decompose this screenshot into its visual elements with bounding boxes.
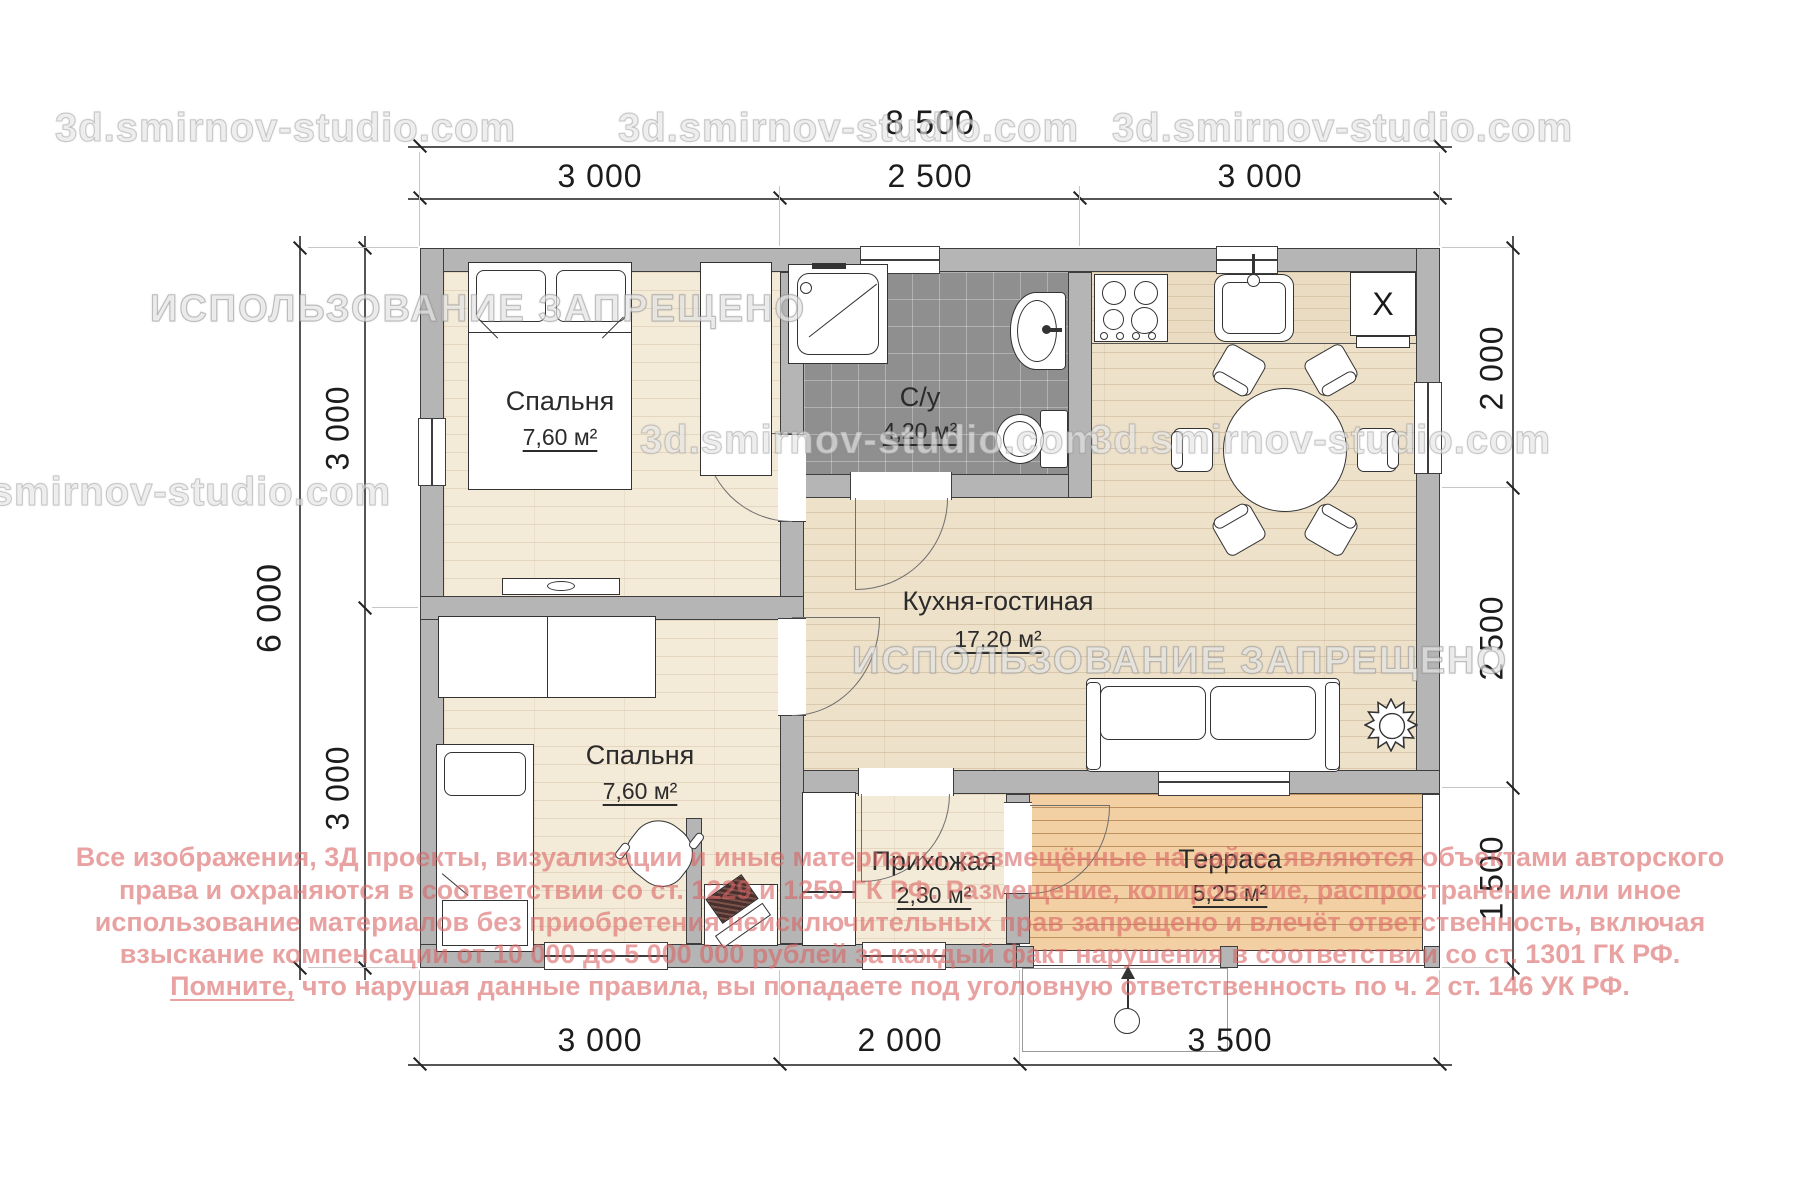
bedroom2-label: Спальня: [540, 740, 740, 771]
extension-line: [372, 607, 418, 608]
dim-bottom-seg2: 2 000: [780, 1022, 1020, 1059]
extension-line: [1439, 152, 1440, 246]
sofa-cushion-left: [1100, 686, 1206, 740]
dim-line-bottom: [408, 1064, 1452, 1066]
sofa-cushion-right: [1210, 686, 1316, 740]
stove-knob-4: [1148, 332, 1156, 340]
copyright-line-5: Помните, что нарушая данные правила, вы …: [0, 971, 1800, 1002]
copyright-line-2: права и охраняются в соответствии со ст.…: [0, 875, 1800, 906]
shower-fixtures: [812, 263, 846, 269]
stove-knob-1: [1100, 332, 1108, 340]
dim-bottom-seg3: 3 500: [1020, 1022, 1440, 1059]
extension-line: [1079, 186, 1080, 246]
extension-line: [779, 186, 780, 246]
door-opening-hallway: [858, 768, 954, 796]
site-watermark: 3d.smirnov-studio.com: [0, 470, 391, 515]
copyright-line-5-lead: Помните,: [170, 971, 294, 1001]
site-watermark: 3d.smirnov-studio.com: [55, 106, 516, 151]
stove-burner-3: [1103, 309, 1124, 330]
stove-knob-3: [1132, 332, 1140, 340]
site-watermark: 3d.smirnov-studio.com: [640, 418, 1101, 463]
dim-top-seg2: 2 500: [780, 158, 1080, 195]
wall-right: [1416, 248, 1440, 794]
site-watermark: 3d.smirnov-studio.com: [1090, 418, 1551, 463]
dim-left-seg2: 3 000: [320, 745, 357, 830]
site-watermark: 3d.smirnov-studio.com: [618, 106, 1079, 151]
copyright-line-3: использование материалов без приобретени…: [0, 907, 1800, 938]
window-bedroom1-left: [418, 418, 446, 486]
door-leaf-entrance: [1030, 805, 1110, 806]
bathroom-label: С/у: [820, 382, 1020, 413]
single-bed-pillow: [444, 752, 526, 796]
door-leaf-bathroom: [855, 498, 856, 590]
cabinet-x-shelf: [1356, 336, 1410, 348]
door-leaf-bedroom2: [792, 617, 880, 618]
kitchen-living-label: Кухня-гостиная: [848, 586, 1148, 617]
dim-top-seg3: 3 000: [1080, 158, 1440, 195]
dim-bottom-seg1: 3 000: [420, 1022, 780, 1059]
sofa-armrest-right: [1325, 682, 1340, 770]
wardrobe-divider: [547, 617, 548, 697]
door-opening-bathroom: [850, 472, 952, 500]
wall-bathroom-right: [1068, 272, 1092, 498]
forbidden-watermark: ИСПОЛЬЗОВАНИЕ ЗАПРЕЩЕНО: [852, 640, 1508, 683]
window-kitchen-top: [1216, 246, 1278, 274]
washbasin-tap-knob: [1042, 325, 1051, 334]
copyright-line-4: взыскание компенсации от 10 000 до 5 000…: [0, 939, 1800, 970]
kitchen-sink-basin: [1222, 282, 1286, 334]
window-living-sofa: [1158, 768, 1290, 796]
forbidden-watermark: ИСПОЛЬЗОВАНИЕ ЗАПРЕЩЕНО: [150, 288, 806, 331]
dim-left-total: 6 000: [251, 563, 290, 653]
dim-line-top-segments: [408, 198, 1452, 200]
bedroom1-area: 7,60 м²: [460, 424, 660, 451]
sofa-armrest-left: [1086, 682, 1101, 770]
floor-plan-canvas: X Спальня 7,60 м² С/у 4,20 м² Кухня-гост…: [0, 0, 1800, 1200]
stove-burner-4: [1131, 307, 1158, 334]
extension-line: [308, 247, 418, 248]
stove-knob-2: [1116, 332, 1124, 340]
kitchen-tap-base: [1247, 274, 1260, 287]
plant-icon: [1364, 698, 1418, 752]
dim-top-seg1: 3 000: [420, 158, 780, 195]
cabinet-x-label: X: [1372, 286, 1393, 323]
copyright-line-5-rest: что нарушая данные правила, вы попадаете…: [294, 971, 1630, 1001]
cabinet-x: X: [1350, 272, 1416, 336]
dim-right-seg1: 2 000: [1474, 325, 1511, 410]
extension-line: [1442, 787, 1510, 788]
bedroom1-label: Спальня: [460, 386, 660, 417]
site-watermark: 3d.smirnov-studio.com: [1112, 106, 1573, 151]
dim-left-seg1: 3 000: [320, 385, 357, 470]
stove-burner-1: [1102, 281, 1126, 305]
extension-line: [419, 152, 420, 246]
shelf-dish: [547, 581, 575, 591]
extension-line: [1442, 487, 1510, 488]
stove-burner-2: [1134, 281, 1158, 305]
bedroom2-area: 7,60 м²: [540, 778, 740, 805]
extension-line: [1442, 247, 1510, 248]
copyright-line-1: Все изображения, 3Д проекты, визуализаци…: [0, 842, 1800, 873]
